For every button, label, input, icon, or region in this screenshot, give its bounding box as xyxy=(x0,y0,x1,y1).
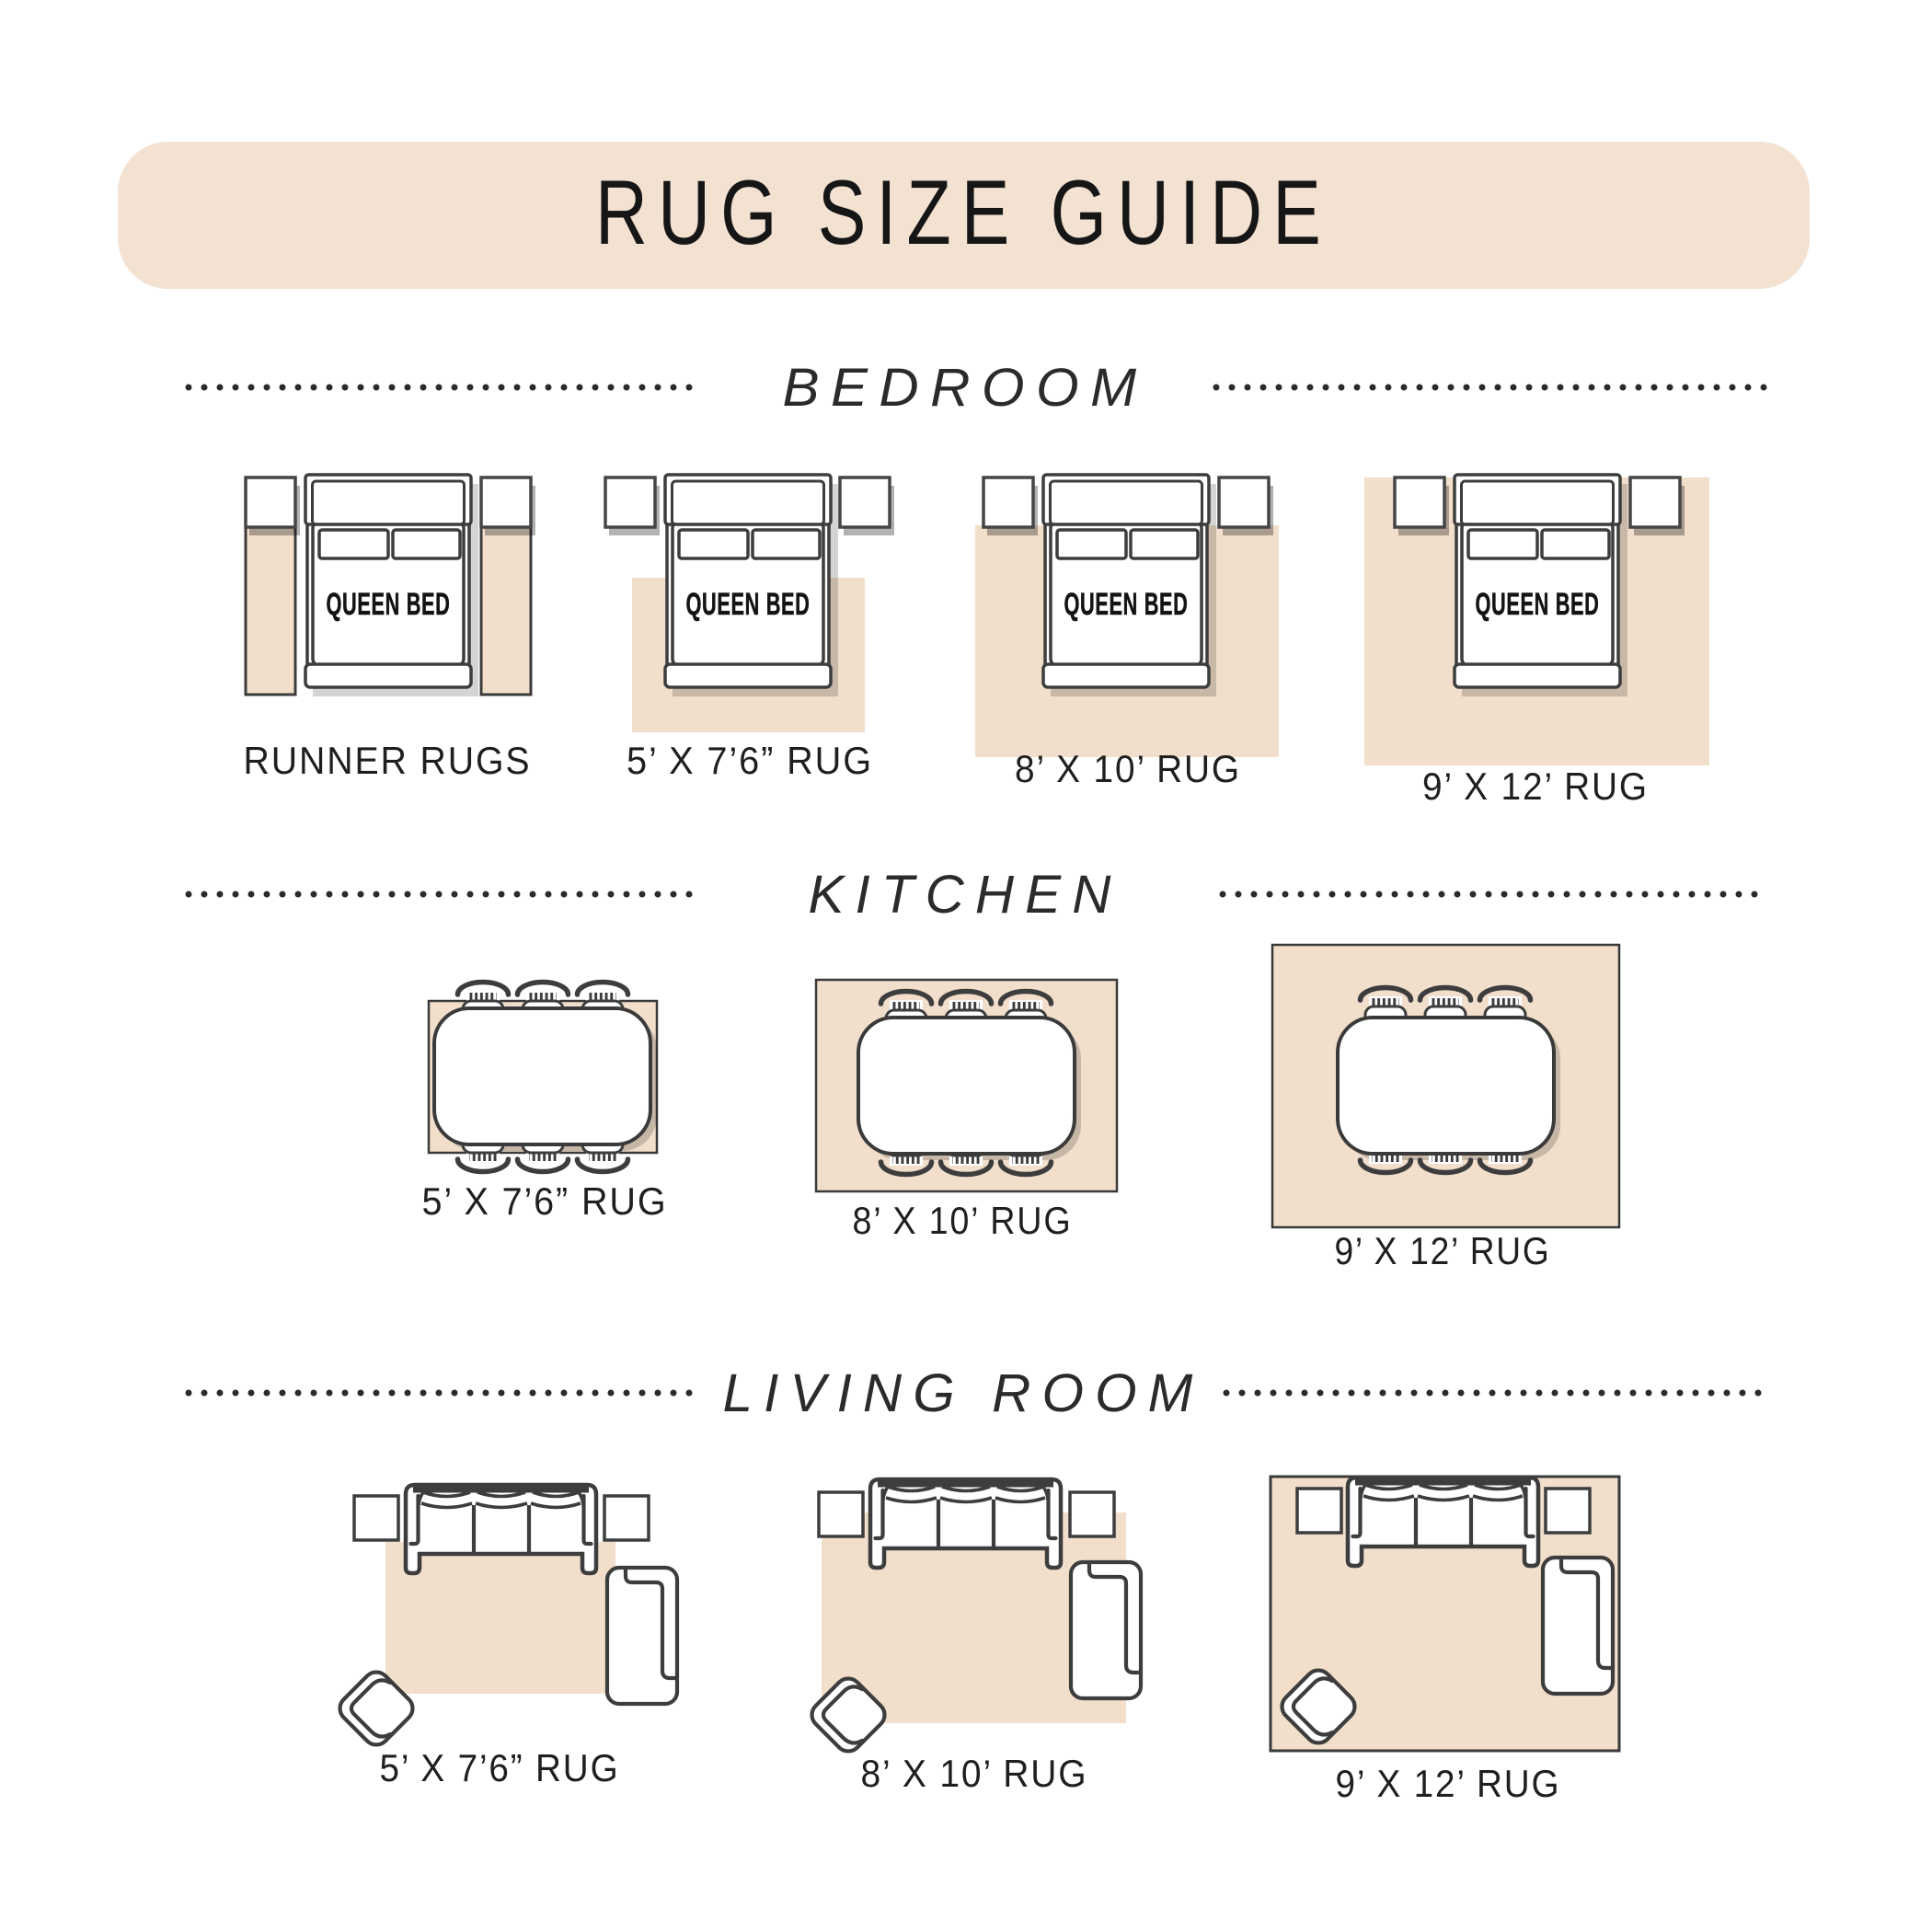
svg-text:KITCHEN: KITCHEN xyxy=(809,865,1122,925)
svg-text:8’ X 10’ RUG: 8’ X 10’ RUG xyxy=(853,1199,1073,1242)
svg-text:RUNNER RUGS: RUNNER RUGS xyxy=(244,739,532,782)
svg-text:8’ X 10’ RUG: 8’ X 10’ RUG xyxy=(861,1752,1088,1795)
svg-text:8’ X 10’ RUG: 8’ X 10’ RUG xyxy=(1015,747,1241,790)
svg-text:9’ X 12’ RUG: 9’ X 12’ RUG xyxy=(1422,765,1649,808)
svg-text:RUG SIZE GUIDE: RUG SIZE GUIDE xyxy=(595,161,1331,263)
svg-text:9’ X 12’ RUG: 9’ X 12’ RUG xyxy=(1335,1229,1551,1272)
svg-text:5’ X 7’6” RUG: 5’ X 7’6” RUG xyxy=(422,1179,668,1223)
svg-text:LIVING ROOM: LIVING ROOM xyxy=(723,1363,1204,1423)
svg-text:5’ X 7’6” RUG: 5’ X 7’6” RUG xyxy=(380,1746,620,1789)
svg-text:BEDROOM: BEDROOM xyxy=(783,358,1148,418)
svg-text:5’ X 7’6” RUG: 5’ X 7’6” RUG xyxy=(627,739,873,782)
svg-text:9’ X 12’ RUG: 9’ X 12’ RUG xyxy=(1336,1762,1561,1805)
